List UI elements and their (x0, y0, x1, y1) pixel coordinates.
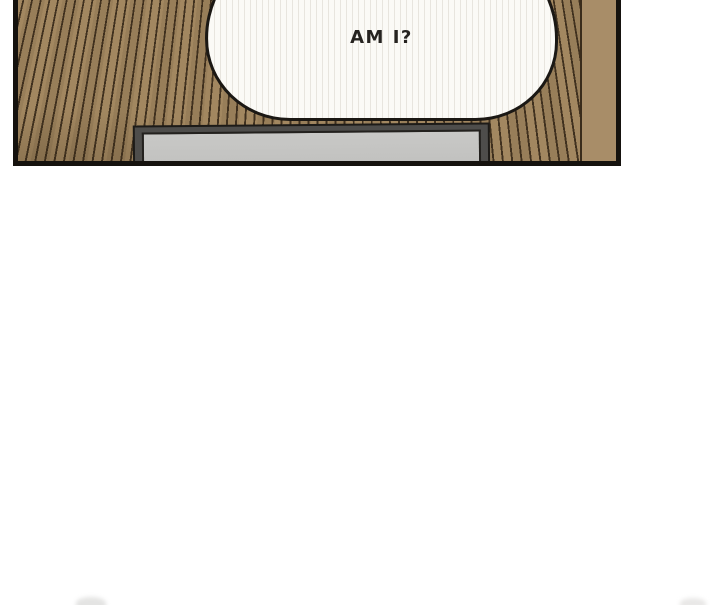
picture-frame-glass (142, 130, 481, 161)
page-background: AM I? (0, 0, 720, 605)
next-panel-smudge-left (76, 597, 106, 605)
comic-panel-inner: AM I? (18, 0, 616, 161)
comic-panel: AM I? (13, 0, 621, 166)
speech-bubble-text: AM I? (208, 27, 555, 48)
next-panel-smudge-right (680, 598, 706, 605)
picture-frame (133, 122, 491, 161)
speech-bubble: AM I? (205, 0, 558, 121)
wood-plain-strip (580, 0, 616, 161)
